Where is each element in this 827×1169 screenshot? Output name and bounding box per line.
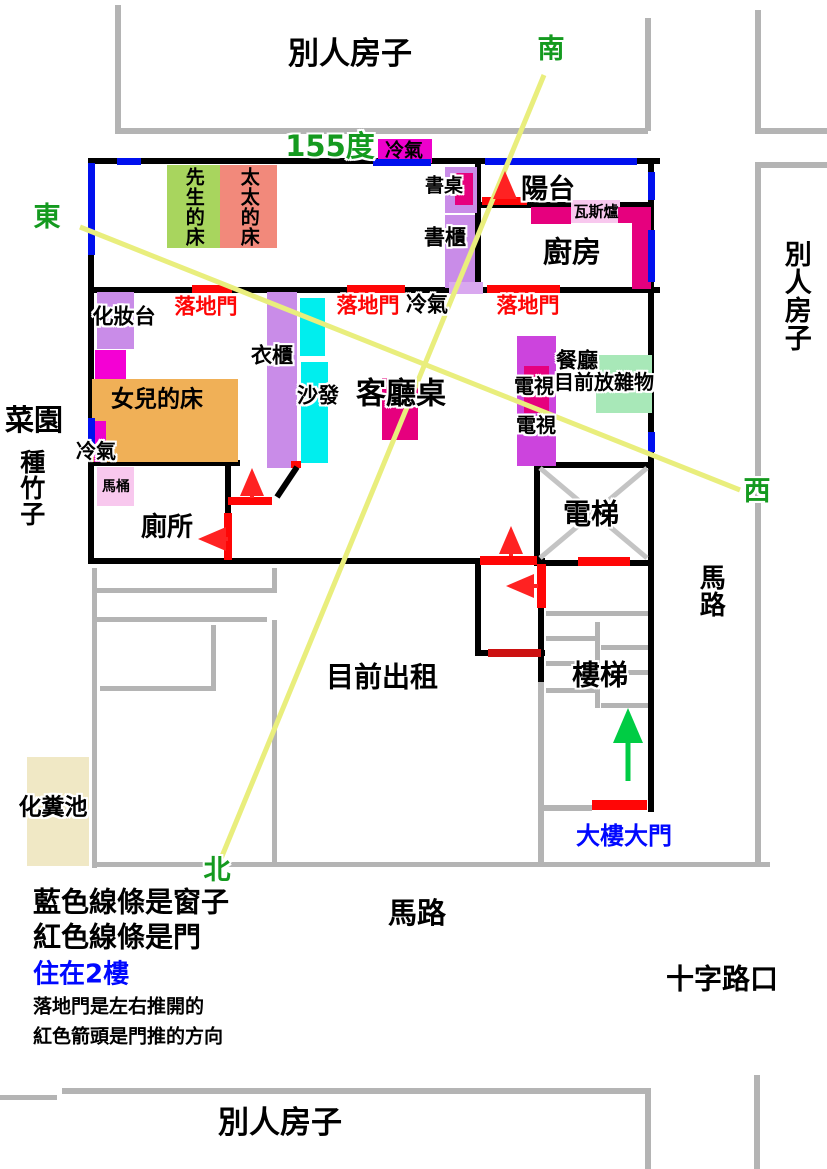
vanity-label: 化妝台 <box>93 306 156 327</box>
open-door-leaf <box>277 467 297 497</box>
neighbor-bottom-label: 別人房子 <box>218 1108 342 1140</box>
road-bottom-label: 馬路 <box>388 899 446 929</box>
tv-label-1: 電視 <box>514 376 554 396</box>
sofa-label: 沙發 <box>297 385 339 406</box>
living-table-label: 客廳桌 <box>356 380 446 411</box>
angle-label: 155度 <box>285 132 375 162</box>
floor-plan: 別人房子 南 155度 冷氣 東 先生的床 太太的床 書桌 書櫃 陽台 瓦斯爐 … <box>0 0 827 1169</box>
toilet-room-label: 廁所 <box>141 515 193 542</box>
sight-line-north-south <box>213 75 544 878</box>
husband-bed-label: 先生的床 <box>183 167 202 247</box>
bamboo-label: 種竹子 <box>18 449 44 527</box>
ac-top-label: 冷氣 <box>385 141 423 160</box>
building-gate-label: 大樓大門 <box>576 824 672 848</box>
crossroad-label: 十字路口 <box>666 966 778 995</box>
dining-note-label: 目前放雜物 <box>554 372 654 392</box>
elevator-label: 電梯 <box>563 501 619 530</box>
sliding-door-3-label: 落地門 <box>497 295 560 316</box>
neighbor-right-label: 別人房子 <box>781 240 809 352</box>
balcony-label: 陽台 <box>521 176 575 204</box>
legend-floor: 住在2樓 <box>33 962 129 989</box>
legend-sliding: 落地門是左右推開的 <box>33 997 204 1016</box>
ac-mid-label: 冷氣 <box>406 294 448 315</box>
road-right-label: 馬路 <box>697 564 724 618</box>
compass-north-label: 北 <box>204 857 231 885</box>
kitchen-label: 廚房 <box>543 238 601 268</box>
legend-arrow: 紅色箭頭是門推的方向 <box>33 1027 223 1046</box>
garden-label: 菜園 <box>5 406 63 436</box>
compass-east-label: 東 <box>34 204 61 232</box>
legend-red-line: 紅色線條是門 <box>33 924 201 953</box>
wardrobe-label: 衣櫃 <box>251 345 293 366</box>
stairs-label: 樓梯 <box>572 662 628 691</box>
desk-label: 書桌 <box>425 176 463 195</box>
daughter-bed-label: 女兒的床 <box>111 388 203 411</box>
ac-left-label: 冷氣 <box>76 441 116 461</box>
septic-tank-label: 化糞池 <box>19 796 88 819</box>
neighbor-top-label: 別人房子 <box>288 39 412 71</box>
compass-south-label: 南 <box>538 36 565 64</box>
wife-bed-label: 太太的床 <box>238 167 257 247</box>
legend-blue-line: 藍色線條是窗子 <box>33 889 229 918</box>
dining-label: 餐廳 <box>556 350 598 371</box>
toilet-bowl-label: 馬桶 <box>102 480 130 494</box>
tv-label-2: 電視 <box>516 415 556 435</box>
compass-west-label: 西 <box>744 478 771 506</box>
sliding-door-1-label: 落地門 <box>175 296 238 317</box>
for-rent-label: 目前出租 <box>326 664 438 693</box>
gas-stove-label: 瓦斯爐 <box>573 204 618 219</box>
bookcase-label: 書櫃 <box>424 227 466 248</box>
sight-line-east-west <box>80 227 740 490</box>
sliding-door-2-label: 落地門 <box>337 295 400 316</box>
